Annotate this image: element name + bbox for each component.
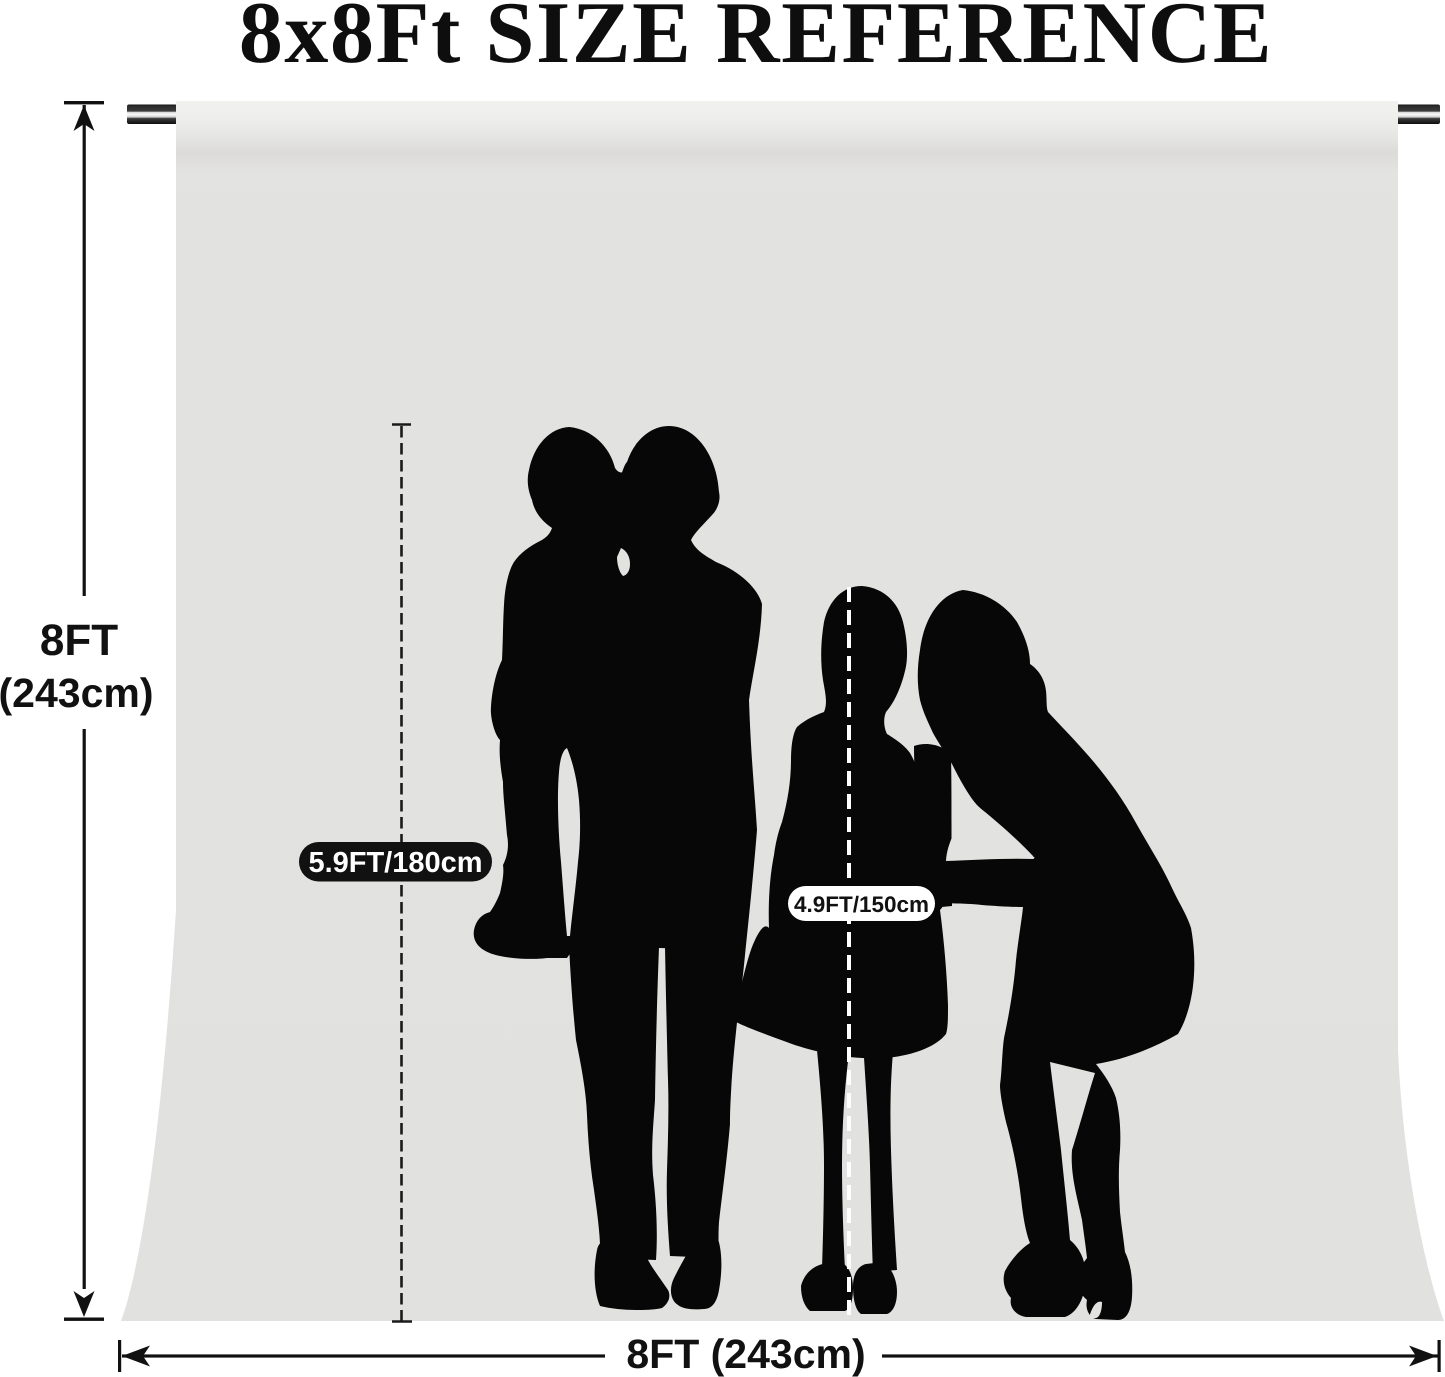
svg-text:8x8Ft SIZE REFERENCE: 8x8Ft SIZE REFERENCE: [239, 0, 1273, 82]
svg-text:5.9FT/180cm: 5.9FT/180cm: [308, 847, 482, 879]
svg-text:4.9FT/150cm: 4.9FT/150cm: [794, 892, 929, 917]
svg-text:(243cm): (243cm): [0, 670, 153, 716]
svg-text:8FT: 8FT: [40, 616, 118, 665]
svg-text:8FT (243cm): 8FT (243cm): [626, 1331, 865, 1377]
